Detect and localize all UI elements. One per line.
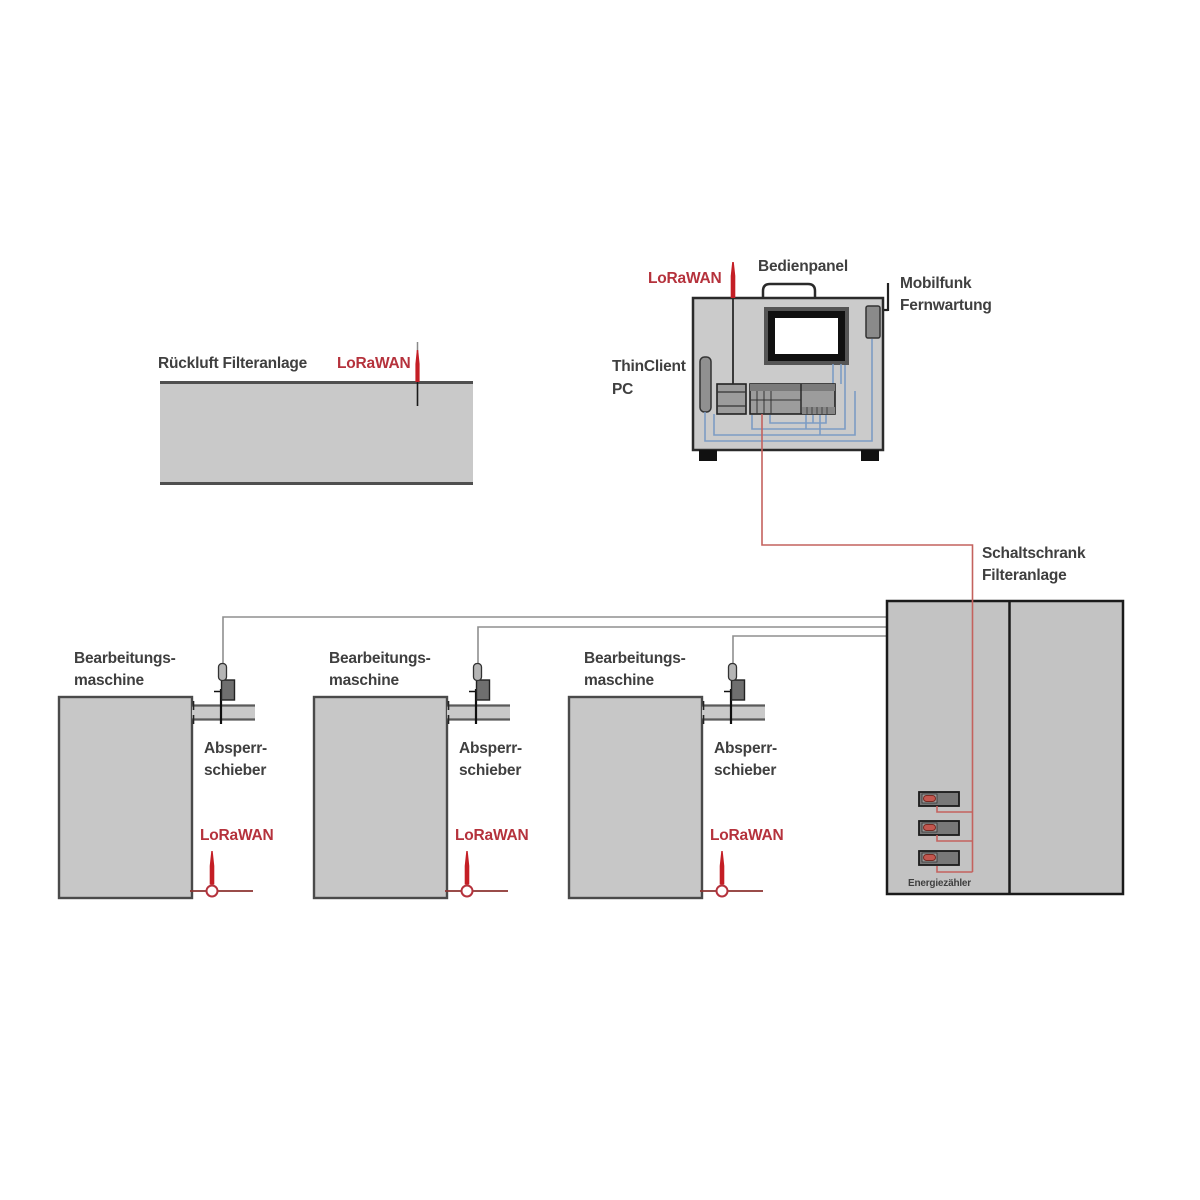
box-foot bbox=[861, 450, 879, 461]
machine-2: Bearbeitungs- maschine Absperr- schieber… bbox=[314, 650, 529, 898]
svg-text:schieber: schieber bbox=[204, 762, 266, 779]
control-unit: LoRaWAN Bedienpanel Mobilfunk Fernwartun… bbox=[612, 258, 992, 461]
operator-panel-screen bbox=[764, 307, 849, 365]
diagram-canvas: Rückluft Filteranlage LoRaWAN bbox=[0, 0, 1200, 1200]
thin-client-label: ThinClient bbox=[612, 358, 686, 375]
energy-meter bbox=[919, 821, 959, 835]
machine-label: Bearbeitungs- bbox=[329, 650, 431, 667]
svg-text:maschine: maschine bbox=[584, 672, 654, 689]
machine-body bbox=[314, 664, 510, 899]
return-air-filter-unit: Rückluft Filteranlage LoRaWAN bbox=[158, 342, 473, 485]
svg-text:Fernwartung: Fernwartung bbox=[900, 297, 992, 314]
box-foot bbox=[699, 450, 717, 461]
machine3-control-wire bbox=[733, 636, 887, 664]
machine-label: Bearbeitungs- bbox=[584, 650, 686, 667]
valve-label: Absperr- bbox=[204, 740, 267, 757]
machine-1: Bearbeitungs- maschine Absperr- schieber… bbox=[59, 650, 274, 898]
cabinet-housing bbox=[887, 601, 1123, 894]
valve-label: Absperr- bbox=[714, 740, 777, 757]
switch-cabinet: Schaltschrank Filteranlage Energiezähler bbox=[887, 545, 1123, 894]
valve-label: Absperr- bbox=[459, 740, 522, 757]
mobile-remote-label: Mobilfunk bbox=[900, 275, 972, 292]
lorawan-system-diagram: Rückluft Filteranlage LoRaWAN bbox=[0, 0, 1200, 1200]
cabinet-label: Schaltschrank bbox=[982, 545, 1086, 562]
cellular-modem bbox=[866, 306, 880, 338]
machine1-control-wire bbox=[223, 617, 887, 664]
machine-lorawan-label: LoRaWAN bbox=[455, 827, 529, 844]
svg-text:schieber: schieber bbox=[714, 762, 776, 779]
control-lorawan-label: LoRaWAN bbox=[648, 270, 722, 287]
thin-client-pc bbox=[700, 357, 711, 412]
return-air-label: Rückluft Filteranlage bbox=[158, 355, 308, 372]
svg-text:schieber: schieber bbox=[459, 762, 521, 779]
energy-meter bbox=[919, 851, 959, 865]
svg-text:Filteranlage: Filteranlage bbox=[982, 567, 1067, 584]
din-rail-modules bbox=[717, 384, 835, 414]
svg-text:maschine: maschine bbox=[329, 672, 399, 689]
machine-lorawan-label: LoRaWAN bbox=[200, 827, 274, 844]
machine-body bbox=[569, 664, 765, 899]
svg-text:PC: PC bbox=[612, 381, 633, 398]
panel-label: Bedienpanel bbox=[758, 258, 848, 275]
return-air-lorawan-label: LoRaWAN bbox=[337, 355, 411, 372]
machine-3: Bearbeitungs- maschine Absperr- schieber… bbox=[569, 650, 784, 898]
machine-body bbox=[59, 664, 255, 899]
svg-text:maschine: maschine bbox=[74, 672, 144, 689]
energy-meter bbox=[919, 792, 959, 806]
machine-lorawan-label: LoRaWAN bbox=[710, 827, 784, 844]
return-air-duct bbox=[160, 381, 473, 485]
machine-label: Bearbeitungs- bbox=[74, 650, 176, 667]
energy-meter-label: Energiezähler bbox=[908, 878, 971, 889]
